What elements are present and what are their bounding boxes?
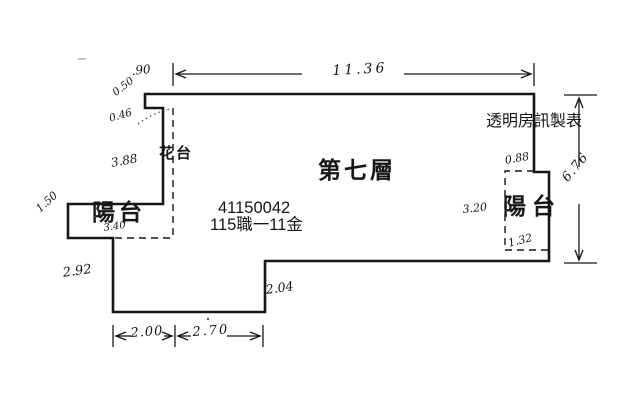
dim-lower-left-wall-label: 2.92	[62, 263, 92, 280]
step-dotted-leader-line	[138, 109, 171, 124]
registration-number: 41150042	[218, 200, 290, 217]
scan-speck-above-dim	[207, 318, 209, 320]
balcony-right-label: 陽台	[503, 195, 561, 218]
dim-right-balcony-height-label: 3.20	[462, 201, 488, 215]
dim-bottom-segment1-label: 2.00	[130, 325, 164, 340]
floor-plan-canvas: .90 11.36 0.50 0.46 花台 3.88 陽台 3.40 1.50…	[0, 0, 640, 409]
dim-bottom-segment2-label: 2.70	[192, 323, 230, 339]
registration-code: 115職一11金	[210, 217, 303, 234]
floor-title: 第七層	[318, 159, 396, 182]
flower-box-label: 花台	[159, 146, 193, 161]
dim-top-offset-label: .90	[131, 63, 151, 77]
dim-top-width-label: 11.36	[332, 61, 388, 78]
publisher-watermark: 透明房訊製表	[486, 114, 582, 130]
